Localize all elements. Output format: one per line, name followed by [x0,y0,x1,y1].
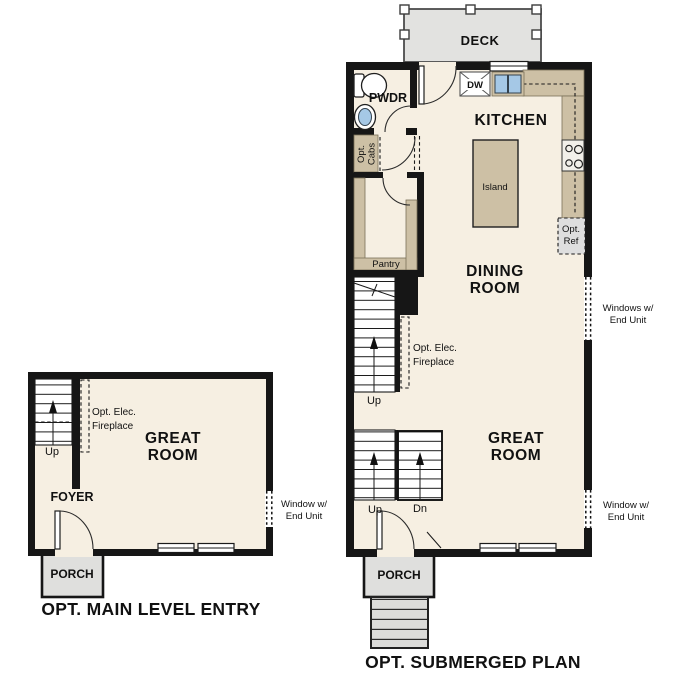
pantry-wall [407,172,424,178]
window-note: End Unit [286,511,323,522]
deck-post [532,5,541,14]
left-end-unit-window [265,491,274,527]
opt-cabs-label: Opt. [356,145,367,163]
exterior-steps [371,597,428,648]
left-plan-title: OPT. MAIN LEVEL ENTRY [41,599,260,619]
dn-label: Dn [413,503,427,515]
opt-ref-label: Ref [564,236,579,247]
dishwasher-label: DW [467,80,483,91]
island-label: Island [482,182,507,193]
opt-fireplace-box [401,317,409,388]
pwdr-label: PWDR [369,91,407,105]
up-label: Up [45,446,59,458]
windows-note: Windows w/ [603,303,654,314]
right-entry-opening [377,549,414,557]
pantry-shelf [354,178,365,270]
left-stairs-up [35,379,72,445]
right-stairs-up [354,277,418,392]
stair-side-wall [395,315,400,392]
entry-door-leaf [377,511,382,549]
pantry-wall [354,172,383,178]
great-room-label: GREAT [488,430,544,447]
great-room-label: ROOM [491,447,542,464]
window-note: Window w/ [603,500,649,511]
deck-post [400,5,409,14]
sink-basin-right [509,75,522,93]
porch-label: PORCH [377,568,420,582]
opt-ref-label: Opt. [562,224,580,235]
dining-room-label: ROOM [470,280,521,297]
up-label: Up [368,504,382,516]
great-room-label: GREAT [145,430,201,447]
deck-post [400,30,409,39]
deck-label: DECK [461,33,500,48]
great-room-end-unit-window [584,490,592,528]
plan-main-level-entry: GREAT ROOM Opt. Elec. Fireplace Up FOYER… [28,372,327,619]
kitchen-label: KITCHEN [474,112,547,129]
deck-post [532,30,541,39]
right-plan-title: OPT. SUBMERGED PLAN [365,652,581,672]
counter-top [523,70,584,96]
window-note: End Unit [608,512,645,523]
sink-bowl [359,109,372,126]
opt-fireplace-label: Opt. Elec. [413,343,457,354]
floor-plan-canvas: GREAT ROOM Opt. Elec. Fireplace Up FOYER… [0,0,687,687]
dining-end-unit-windows [584,277,592,340]
plan-submerged: DECK PWDR DW KITCHEN Island Opt. Cabs Pa… [346,5,654,672]
pantry-label: Pantry [372,259,400,270]
windows-note: End Unit [610,315,647,326]
entry-door-leaf [55,511,60,549]
stove [562,140,584,171]
stair-top-wall [346,270,424,277]
opt-fireplace-label: Fireplace [413,357,455,368]
left-entry-opening [55,549,93,557]
opt-fireplace-box [81,380,89,452]
dining-room-label: DINING [466,263,524,280]
great-room-label: ROOM [148,447,199,464]
floor-plan-drawing: GREAT ROOM Opt. Elec. Fireplace Up FOYER… [0,0,687,687]
entry-stairs [354,430,442,500]
opt-cabs-label: Cabs [367,143,378,165]
deck-post [466,5,475,14]
stair-wall [72,379,80,489]
sink-basin-left [495,75,508,93]
up-label: Up [367,395,381,407]
pwdr-wall [410,70,417,108]
kitchen-wall [417,178,424,277]
foyer-label: FOYER [50,490,93,504]
deck-door-leaf [419,66,424,104]
porch-label: PORCH [50,567,93,581]
window-note: Window w/ [281,499,327,510]
opt-fireplace-label: Fireplace [92,421,134,432]
pwdr-wall [406,128,417,135]
opt-fireplace-label: Opt. Elec. [92,407,136,418]
stair-landing-wall [395,277,418,315]
pantry-shelf [406,200,417,270]
